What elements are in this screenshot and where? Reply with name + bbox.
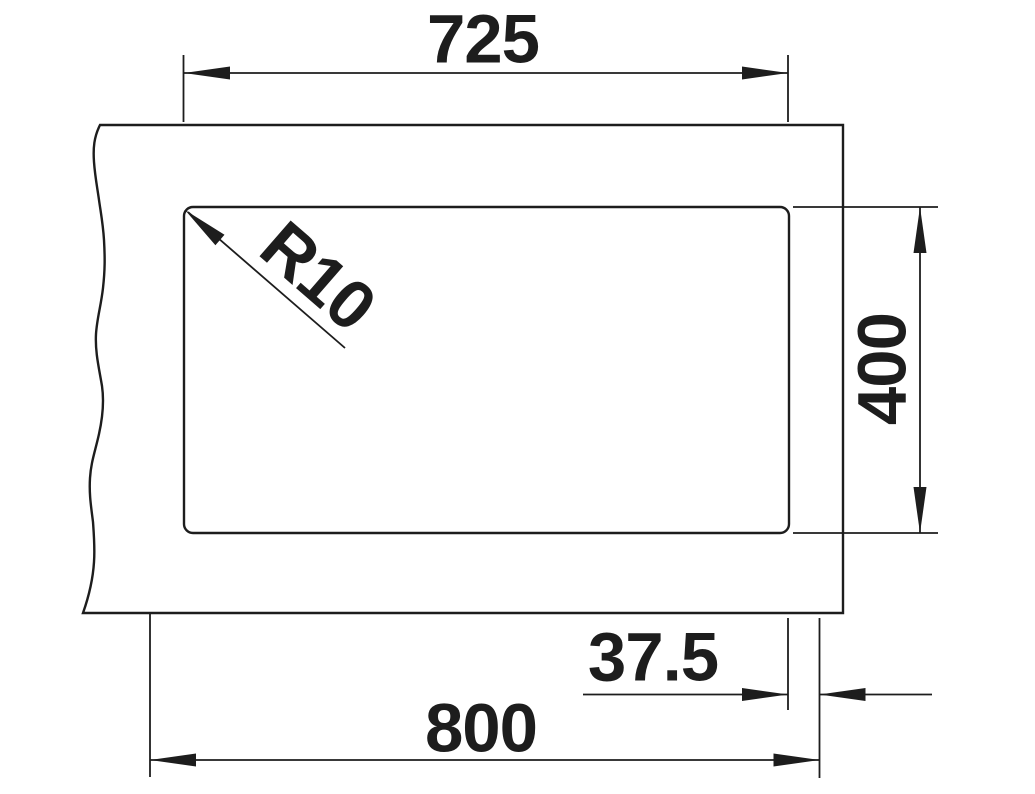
countertop-panel-outline	[83, 125, 843, 613]
dim-label-overall-width: 800	[425, 690, 537, 767]
dimension-corner-radius: R10	[185, 206, 390, 348]
dimension-right-offset: 37.5	[583, 618, 932, 778]
arrow-left-icon	[184, 67, 230, 80]
dim-label-right-offset: 37.5	[588, 619, 718, 696]
dim-label-corner-radius: R10	[246, 206, 390, 345]
sink-cutout-drawing: 725 R10 400 37.5	[0, 0, 1035, 794]
arrow-left-icon	[820, 688, 866, 701]
dim-label-cutout-height: 400	[844, 313, 921, 425]
dimension-cutout-height: 400	[793, 207, 938, 533]
arrow-radius-icon	[185, 210, 225, 245]
arrow-up-icon	[914, 207, 927, 253]
arrow-left-icon	[150, 754, 196, 767]
dimension-cutout-width: 725	[184, 1, 789, 123]
dim-label-cutout-width: 725	[427, 1, 539, 78]
arrow-right-icon	[742, 688, 788, 701]
arrow-down-icon	[914, 487, 927, 533]
arrow-right-icon	[774, 754, 820, 767]
dimension-overall-width: 800	[150, 614, 820, 777]
technical-drawing-canvas: 725 R10 400 37.5	[0, 0, 1035, 794]
arrow-right-icon	[742, 67, 788, 80]
